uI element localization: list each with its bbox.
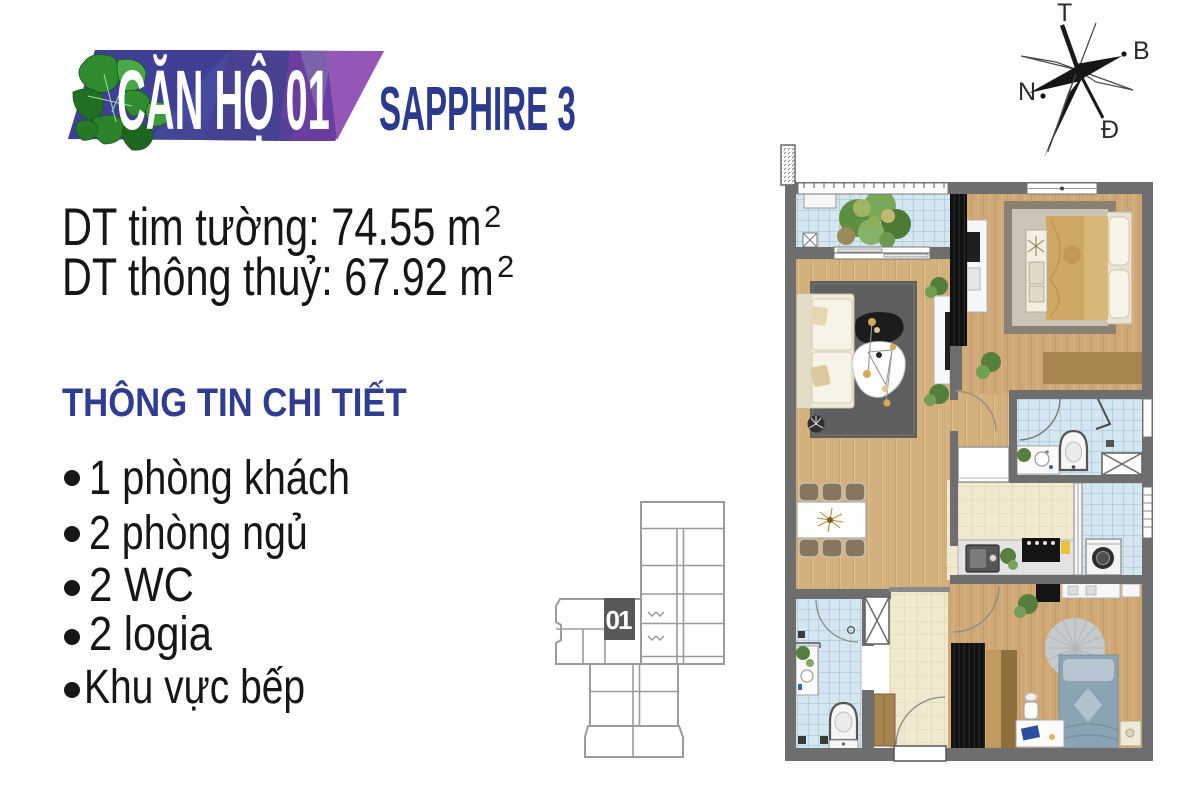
svg-text:T: T [1057,0,1072,27]
svg-text:N: N [1018,78,1036,106]
svg-text:2 WC: 2 WC [89,557,194,611]
svg-text:Đ: Đ [1101,116,1119,144]
svg-text:Khu vực bếp: Khu vực bếp [84,660,305,714]
svg-text:THÔNG TIN CHI TIẾT: THÔNG TIN CHI TIẾT [62,380,407,425]
svg-text:DT thông thuỷ: 67.92 m: DT thông thuỷ: 67.92 m [62,248,494,307]
svg-text:SAPPHIRE 3: SAPPHIRE 3 [379,74,576,144]
svg-text:2 phòng ngủ: 2 phòng ngủ [89,506,308,560]
svg-text:1 phòng khách: 1 phòng khách [89,452,350,505]
svg-text:B: B [1133,37,1150,65]
svg-text:2: 2 [484,199,501,234]
svg-text:CĂN HỘ 01: CĂN HỘ 01 [117,52,330,147]
svg-text:2: 2 [497,249,514,284]
svg-text:2 logia: 2 logia [89,606,212,660]
svg-text:01: 01 [606,605,633,635]
